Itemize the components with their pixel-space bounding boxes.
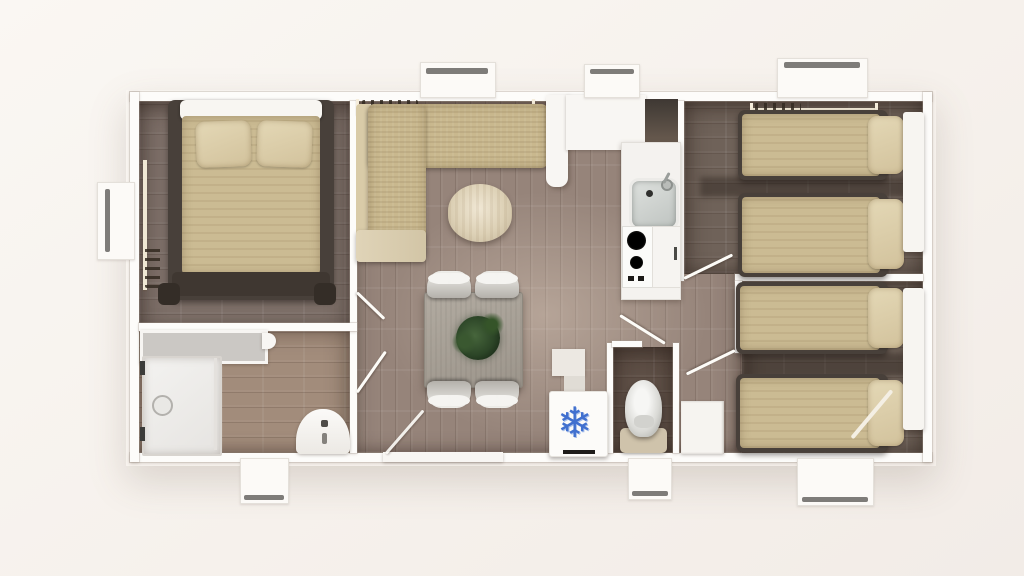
shower-hinge-top — [140, 361, 145, 375]
bed-foot-right — [314, 283, 336, 305]
dining-chair-bottom-right — [475, 381, 519, 408]
toilet-seat-inner — [634, 415, 654, 428]
bedroom3-bed-c-mattress — [740, 286, 880, 350]
kitchen-dark-counter — [645, 99, 678, 144]
table-plant — [456, 316, 500, 360]
window-bottom-wc-bar — [632, 491, 668, 496]
stove-burner-small — [630, 256, 643, 269]
floor-plan-render: ❄ — [0, 0, 1024, 576]
step-shelf-large — [552, 349, 585, 376]
double-bed-pillow-left — [195, 120, 252, 168]
window-bottom-bedroom3-bar — [802, 497, 868, 502]
stove-knob-1 — [628, 276, 634, 281]
dining-chair-top-right — [475, 271, 519, 298]
freezer-snowflake-icon: ❄ — [557, 402, 592, 444]
dining-chair-top-left — [427, 271, 471, 298]
stove-knob-2 — [638, 276, 644, 281]
shower-door-line — [214, 358, 217, 450]
window-bottom-bathroom-bar — [244, 495, 284, 500]
window-left-master-bar — [105, 189, 110, 252]
double-bed-foot-bar — [172, 272, 330, 296]
toilet-bowl — [625, 380, 662, 437]
bedroom2-bed-a-mattress — [742, 114, 880, 176]
bedroom3-headboard-panel — [903, 288, 924, 430]
window-top-kitchen-bar — [590, 69, 634, 74]
stove-burner-large — [627, 231, 646, 250]
exterior-wall-right — [923, 92, 932, 462]
wc-side-cabinet — [681, 401, 724, 454]
bedroom2-bed-b-mattress — [742, 197, 880, 273]
bedroom2-bed-a-pillow — [868, 116, 904, 174]
double-bed-pillow-right — [256, 120, 313, 168]
window-top-bedroom2-bar — [784, 62, 860, 68]
window-top-living-bar — [426, 68, 488, 74]
wall-wc-right — [673, 343, 679, 453]
entrance-threshold — [383, 452, 503, 462]
round-side-table — [448, 184, 512, 242]
bedroom3-bed-d-mattress — [740, 378, 880, 448]
wall-wc-top-stub — [612, 341, 642, 347]
bed-foot-left — [158, 283, 180, 305]
master-hangers — [145, 246, 160, 288]
fridge-bottom-line — [563, 450, 595, 454]
washbasin-drain — [322, 433, 327, 444]
shower-drain — [152, 395, 173, 416]
shower-hinge-bottom — [140, 427, 145, 441]
bedroom2-bed-b-pillow — [868, 199, 904, 269]
sofa-end-table — [356, 230, 426, 262]
sink-drain — [646, 190, 653, 197]
washbasin-faucet — [321, 420, 328, 427]
cabinet-handle — [674, 247, 677, 260]
bedroom3-bed-gap-shadow — [744, 353, 905, 376]
bedroom2-headboard-panel — [903, 112, 924, 252]
exterior-wall-left — [130, 92, 139, 462]
dining-chair-bottom-left — [427, 381, 471, 408]
bedroom3-bed-c-pillow — [868, 288, 904, 348]
window-left-master — [97, 182, 135, 260]
kitchen-tall-cabinet — [546, 95, 568, 187]
